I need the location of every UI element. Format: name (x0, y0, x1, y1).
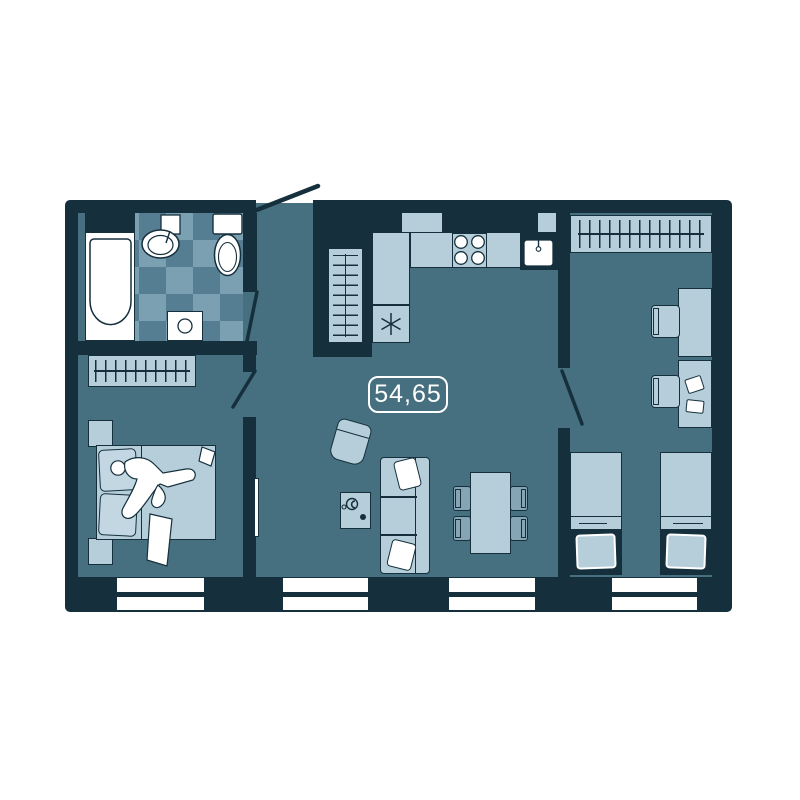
desk (678, 288, 712, 357)
coffee-table (340, 492, 371, 529)
sofa-cushion-line (381, 534, 417, 536)
window-pane (449, 597, 535, 610)
rightroom-wardrobe (570, 215, 712, 253)
dining-chair (453, 486, 471, 511)
area-label: 54,65 (368, 376, 448, 413)
washing-machine (167, 311, 203, 341)
bedroom-wardrobe (88, 355, 196, 387)
sofa-cushion-line (381, 496, 417, 498)
bed-pillow (98, 448, 138, 492)
wardrobe-hangers (95, 360, 188, 383)
rightroom-wall-lower (558, 428, 570, 577)
desk-chair (651, 375, 680, 408)
bed-pillow (575, 533, 616, 569)
window-pane (283, 578, 368, 592)
floor-plan-canvas: 54,65 (0, 0, 800, 800)
chair-backrest (521, 519, 527, 538)
wall-below-bathroom (78, 341, 257, 355)
area-value: 54,65 (374, 380, 442, 409)
chair-backrest (521, 489, 527, 508)
chair-backrest (455, 489, 461, 508)
mirror (254, 478, 259, 537)
kitchen-sink-module (520, 233, 558, 270)
hall-closet (328, 248, 363, 343)
wardrobe-hangers (579, 220, 702, 247)
window (449, 578, 535, 610)
blanket-fold-line (673, 523, 703, 524)
desk (678, 360, 712, 428)
bed-pillow (665, 533, 706, 569)
sink-niche (538, 213, 556, 232)
window-pane (117, 597, 204, 610)
window-pane (117, 578, 204, 592)
blanket-fold-line (141, 446, 142, 539)
window (612, 578, 697, 610)
closet-hangers (333, 255, 358, 337)
nightstand (88, 538, 113, 565)
rightroom-wall-upper (558, 213, 570, 368)
window-pane (449, 578, 535, 592)
bedroom-wall-upper (243, 341, 256, 372)
window-pane (283, 597, 368, 610)
blanket-fold-line (661, 516, 711, 517)
nightstand (88, 420, 113, 447)
counter-niche (402, 213, 442, 232)
window (283, 578, 368, 610)
entrance-opening-floor (256, 203, 313, 213)
dining-chair (510, 516, 528, 541)
stove (452, 233, 487, 268)
bathroom-wall-ledge (85, 213, 135, 232)
bathroom-right-wall (243, 213, 257, 292)
blanket-fold-line (579, 523, 607, 524)
chair-backrest (653, 378, 659, 405)
window-pane (612, 578, 697, 592)
dining-table (470, 472, 511, 554)
dining-chair (510, 486, 528, 511)
bathtub (85, 232, 135, 341)
paper-sheet (685, 399, 704, 414)
window-pane (612, 597, 697, 610)
chair-backrest (455, 519, 461, 538)
kitchen-corner-cabinet (372, 305, 410, 343)
kitchen-counter-vertical (372, 232, 410, 305)
chair-backrest (653, 308, 659, 335)
bed-pillow (98, 493, 138, 537)
window (117, 578, 204, 610)
dining-chair (453, 516, 471, 541)
blanket-fold-line (571, 516, 621, 517)
desk-chair (651, 305, 680, 338)
